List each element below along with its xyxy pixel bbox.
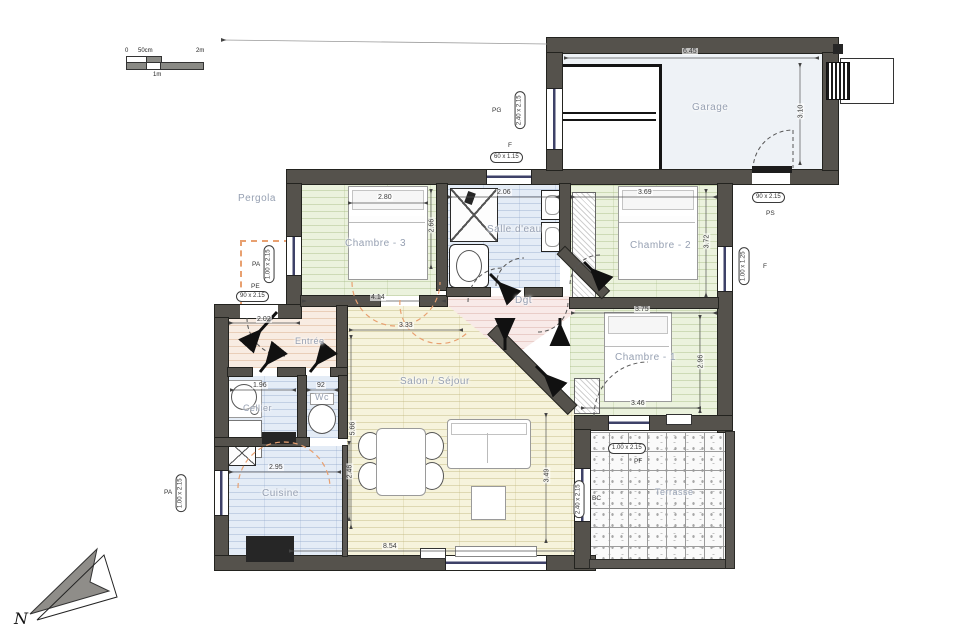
opening-code-pe: PE: [251, 283, 260, 290]
salle-eau-label: Salle d'eau: [487, 224, 542, 235]
garage-shelf: [562, 112, 656, 121]
partition: [560, 184, 570, 256]
partition: [278, 368, 305, 376]
garage-door-pg: [547, 88, 562, 150]
partition: [420, 296, 447, 306]
terrasse-door-pf: [608, 416, 650, 430]
scale-bar: 0 50cm 2m 1m: [126, 48, 216, 80]
sink-basin: [545, 195, 560, 215]
chambre1-label: Chambre - 1: [615, 352, 676, 363]
cuisine-label: Cuisine: [262, 488, 299, 499]
dgt-label: Dgt: [515, 295, 532, 306]
cuisine-door-pa: [215, 470, 228, 516]
sink-basin: [545, 227, 560, 247]
partition: [437, 184, 447, 290]
opening-badge-pf: 1.00 x 2.15: [608, 443, 646, 454]
partition: [337, 306, 347, 376]
north-arrow: N: [13, 549, 117, 628]
bed-pillow: [622, 190, 694, 210]
opening-code-bc: BC: [592, 495, 601, 502]
scale-2m: 2m: [196, 48, 204, 54]
dim-cuisine-w: 2.95: [268, 464, 284, 471]
dim-garage-depth: 3.10: [797, 104, 804, 120]
window-sill: [455, 546, 537, 557]
opening-badge-ps: 90 x 2.15: [752, 192, 785, 203]
dim-cellier-w: 1.96: [252, 382, 268, 389]
chambre3-label: Chambre - 3: [345, 238, 406, 249]
leader-line: [222, 40, 547, 44]
scale-50cm: 50cm: [138, 48, 153, 54]
toilet-bowl: [456, 250, 482, 282]
bed-fold: [349, 216, 425, 223]
sofa-seam: [487, 433, 488, 463]
partition: [343, 446, 347, 556]
opening-code-ps: PS: [766, 210, 775, 217]
terrasse-wall: [590, 560, 734, 568]
bed-fold: [619, 216, 695, 223]
dim-salon-left: 5.66: [349, 421, 356, 437]
toilet-bowl: [308, 404, 336, 434]
pergola-label: Pergola: [238, 193, 276, 204]
exterior-unit: [826, 62, 850, 100]
bed-pillow: [608, 316, 668, 334]
opening-code-f-right: F: [763, 263, 767, 270]
dim-chambre3-h: 2.66: [428, 218, 435, 234]
dim-salon-top: 3.33: [398, 322, 414, 329]
chambre3-window: [287, 236, 301, 276]
opening-code-f-top: F: [508, 142, 512, 149]
scale-seg: [126, 62, 148, 70]
terrasse-wall: [726, 432, 734, 568]
dim-chambre1-h: 2.96: [697, 354, 704, 370]
scale-1m: 1m: [153, 72, 161, 78]
opening-badge-pa2: 1.00 x 2.15: [176, 474, 187, 512]
dim-chambre2-h: 3.72: [703, 234, 710, 250]
north-label: N: [13, 609, 29, 628]
dim-salle-eau-w: 2.06: [496, 189, 512, 196]
sofa-back: [451, 423, 527, 435]
stove: [246, 536, 294, 562]
dim-entree-w: 2.02: [256, 316, 272, 323]
wall: [575, 416, 732, 430]
dim-garage-width: 6.45: [682, 48, 698, 55]
dim-cuisine-h: 2.46: [346, 464, 353, 480]
dim-salon-bottom: 8.54: [382, 543, 398, 550]
wall: [718, 184, 732, 432]
partition: [339, 376, 347, 438]
salon-bay-window: [445, 556, 547, 570]
partition: [301, 296, 380, 306]
chambre2-window: [718, 246, 732, 292]
opening-code-pa2: PA: [164, 489, 172, 496]
top-window-f: [486, 170, 532, 184]
coffee-table: [471, 486, 506, 520]
scale-seg: [160, 62, 204, 70]
terrasse-label: Terrasse: [655, 487, 694, 497]
opening-code-pf: PF: [634, 458, 642, 465]
partition: [228, 368, 252, 376]
garage-service-door-gap: [752, 170, 790, 184]
salon-label: Salon / Séjour: [400, 376, 470, 387]
bed-fold: [605, 340, 669, 347]
partition: [331, 368, 347, 376]
dim-wc-w: 92: [316, 382, 326, 389]
garage-label: Garage: [692, 102, 728, 113]
opening-code-pg: PG: [492, 107, 501, 114]
cellier-label: Cellier: [243, 403, 272, 413]
radiator: [420, 548, 446, 559]
dining-table: [376, 428, 426, 496]
chambre2-label: Chambre - 2: [630, 240, 691, 251]
dim-chambre3-bed: 2.80: [377, 194, 393, 201]
cooktop: [262, 432, 296, 444]
scale-0: 0: [125, 48, 128, 54]
opening-badge-f-top: 60 x 1.15: [490, 152, 523, 163]
dim-chambre1-w: 3.75: [634, 306, 650, 313]
wardrobe-chambre1: [574, 378, 600, 414]
floor-plan: N 0 50cm 2m 1m Garage Pergola Chambre - …: [0, 0, 953, 634]
partition: [298, 376, 306, 438]
opening-badge-pa: 1.00 x 2.15: [264, 245, 275, 283]
partition: [447, 288, 490, 296]
entree-label: Entrée: [295, 336, 325, 346]
dim-chambre1-door: 3.46: [630, 400, 646, 407]
opening-badge-pg: 2.40 x 2.15: [515, 91, 526, 129]
dim-salon-right: 3.49: [543, 468, 550, 484]
opening-badge-f-right: 1.00 x 1.25: [739, 247, 750, 285]
garage-roof-box: [833, 44, 843, 54]
radiator: [666, 414, 692, 425]
opening-badge-pe: 90 x 2.15: [236, 291, 269, 302]
opening-code-pa: PA: [252, 261, 260, 268]
opening-badge-bc: 2.40 x 2.15: [574, 480, 585, 518]
wc-label: Wc: [315, 392, 329, 402]
dim-chambre3-w: 4.14: [370, 294, 386, 301]
dim-chambre2-w: 3.69: [637, 189, 653, 196]
